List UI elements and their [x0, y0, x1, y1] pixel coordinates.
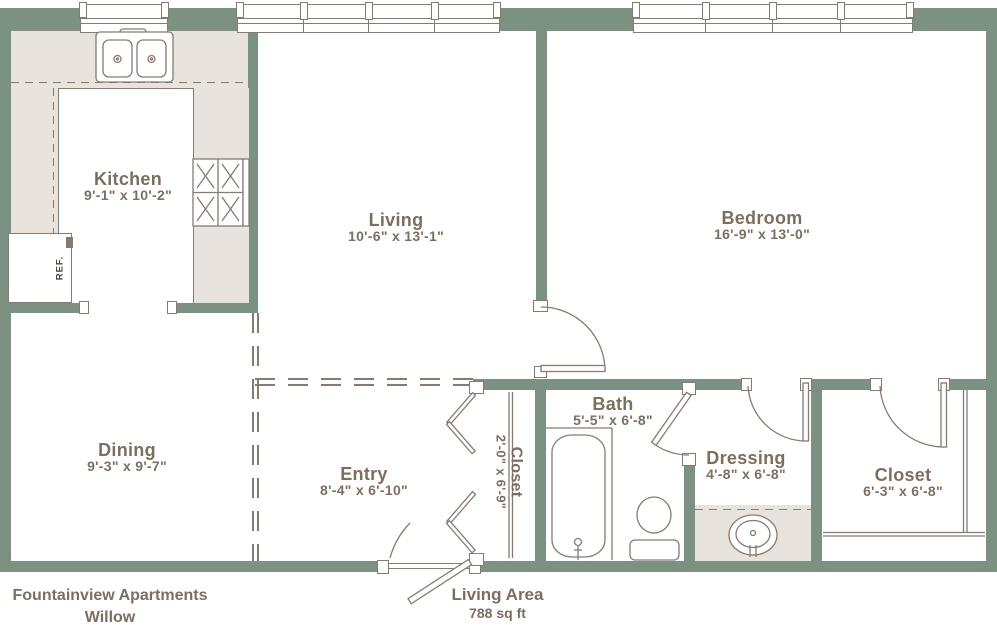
room-label-bath: Bath 5'-5" x 6'-8" [573, 395, 653, 427]
room-name: Bedroom [714, 209, 810, 227]
jamb-dressing-door [741, 378, 752, 391]
divider-dining-entry [252, 313, 254, 561]
room-name: Closet [508, 435, 524, 509]
vanity-counter-line [695, 509, 811, 510]
refrigerator-handle [66, 237, 73, 248]
living-area-label: Living Area [390, 585, 605, 605]
jamb-bath-door [682, 382, 696, 395]
entry-door-sill [389, 563, 469, 569]
room-label-kitchen: Kitchen 9'-1" x 10'-2" [84, 170, 172, 202]
kitchen-counter-left [11, 88, 59, 233]
window-mullion-stem [705, 20, 706, 33]
closet-rod-right [823, 390, 985, 536]
wall-top-mid-2 [500, 8, 633, 31]
wall-bath-dressing [684, 455, 695, 572]
room-label-bedroom: Bedroom 16'-9" x 13'-0" [714, 209, 810, 241]
window-mullion-stem [772, 20, 773, 33]
window-mullion [702, 2, 710, 20]
window-mullion-stem [368, 20, 369, 33]
room-label-dressing: Dressing 4'-8" x 6'-8" [706, 449, 786, 481]
door-swing-closet2 [880, 383, 947, 447]
room-name: Living [348, 211, 444, 229]
room-dims: 9'-3" x 9'-7" [87, 459, 167, 473]
door-swing-dressing [748, 383, 809, 441]
bathtub-icon [546, 428, 612, 560]
window-end-cap [79, 2, 87, 18]
vanity-counter [695, 505, 811, 561]
room-label-entry: Entry 8'-4" x 6'-10" [320, 465, 408, 497]
window-mullion-stem [434, 20, 435, 33]
window-mullion [431, 2, 439, 20]
door-swing-bedroom [541, 307, 605, 372]
room-dims: 6'-3" x 6'-8" [863, 484, 943, 498]
room-dims: 10'-6" x 13'-1" [348, 229, 444, 243]
floor-plan: REF. [0, 0, 997, 625]
room-name: Dressing [706, 449, 786, 467]
room-dims: 9'-1" x 10'-2" [84, 188, 172, 202]
fixtures-layer [0, 0, 997, 625]
jamb-bedroom-door [533, 300, 548, 312]
room-dims: 5'-5" x 6'-8" [573, 413, 653, 427]
door-swing-bath [652, 392, 691, 455]
window-mullion [365, 2, 373, 20]
plan-title: Fountainview Apartments [0, 585, 220, 607]
room-dims: 8'-4" x 6'-10" [320, 483, 408, 497]
window-mullion-stem [303, 20, 304, 33]
wall-south-1 [473, 379, 748, 390]
jamb-bedroom-door [534, 366, 547, 378]
divider-dining-entry [257, 313, 259, 561]
toilet-icon [630, 497, 679, 560]
plan-subtitle: Willow [0, 607, 220, 625]
wall-bottom-right [471, 561, 997, 572]
room-label-dining: Dining 9'-3" x 9'-7" [87, 441, 167, 473]
living-area-block: Living Area 788 sq ft [390, 585, 605, 621]
window-living [237, 4, 500, 33]
window-end-cap [236, 2, 244, 18]
jamb-closet2-door [938, 378, 950, 391]
wall-top-right [913, 8, 997, 31]
wall-kitchen-living [248, 31, 258, 313]
kitchen-counter-right [193, 88, 249, 303]
room-label-living: Living 10'-6" x 13'-1" [348, 211, 444, 243]
jamb-entry-door [377, 560, 389, 574]
jamb-closet-bifold [469, 381, 484, 394]
window-mullion-stem [840, 20, 841, 33]
window-bedroom [633, 4, 913, 33]
wall-south-3 [944, 379, 997, 390]
room-label-closet-right: Closet 6'-3" x 6'-8" [863, 466, 943, 498]
kitchen-wall-cabinet-line-left [53, 88, 54, 233]
wall-top-mid-1 [168, 8, 237, 31]
wall-bath-left [535, 379, 546, 572]
window-kitchen [80, 4, 168, 33]
room-label-closet-small: Closet 2'-0" x 6'-9" [495, 435, 524, 509]
divider-living-entry [255, 378, 473, 380]
wall-living-bedroom [536, 31, 547, 310]
kitchen-counter-top [11, 31, 248, 89]
wall-bottom-left [0, 561, 385, 572]
window-mullion [837, 2, 845, 20]
wall-kitchen-dining-1 [0, 303, 88, 313]
room-dims: 16'-9" x 13'-0" [714, 227, 810, 241]
kitchen-wall-cabinet-line [11, 82, 248, 83]
room-dims: 2'-0" x 6'-9" [495, 435, 508, 509]
window-end-cap [632, 2, 640, 18]
window-end-cap [906, 2, 914, 18]
wall-kitchen-dining-2 [168, 303, 257, 313]
jamb-closet2-door [870, 378, 882, 391]
room-name: Bath [573, 395, 653, 413]
window-glass [81, 18, 167, 24]
plan-title-block: Fountainview Apartments Willow [0, 585, 220, 625]
room-name: Dining [87, 441, 167, 459]
jamb-kitchen-passage [167, 301, 177, 314]
bifold-doors-closet [446, 393, 475, 553]
jamb-bath-door [682, 453, 696, 466]
room-dims: 4'-8" x 6'-8" [706, 467, 786, 481]
jamb-kitchen-passage [79, 301, 89, 314]
window-mullion [300, 2, 308, 20]
window-end-cap [161, 2, 169, 18]
divider-living-entry [255, 384, 473, 386]
jamb-dressing-door [800, 378, 812, 391]
wall-right [986, 8, 997, 572]
living-area-value: 788 sq ft [390, 605, 605, 622]
wall-top-left [0, 8, 80, 31]
jamb-closet-bifold [469, 553, 484, 566]
wall-dressing-closet [811, 379, 822, 572]
room-name: Entry [320, 465, 408, 483]
room-name: Closet [863, 466, 943, 484]
room-name: Kitchen [84, 170, 172, 188]
window-mullion [769, 2, 777, 20]
window-end-cap [493, 2, 501, 18]
refrigerator-label: REF. [55, 256, 66, 281]
